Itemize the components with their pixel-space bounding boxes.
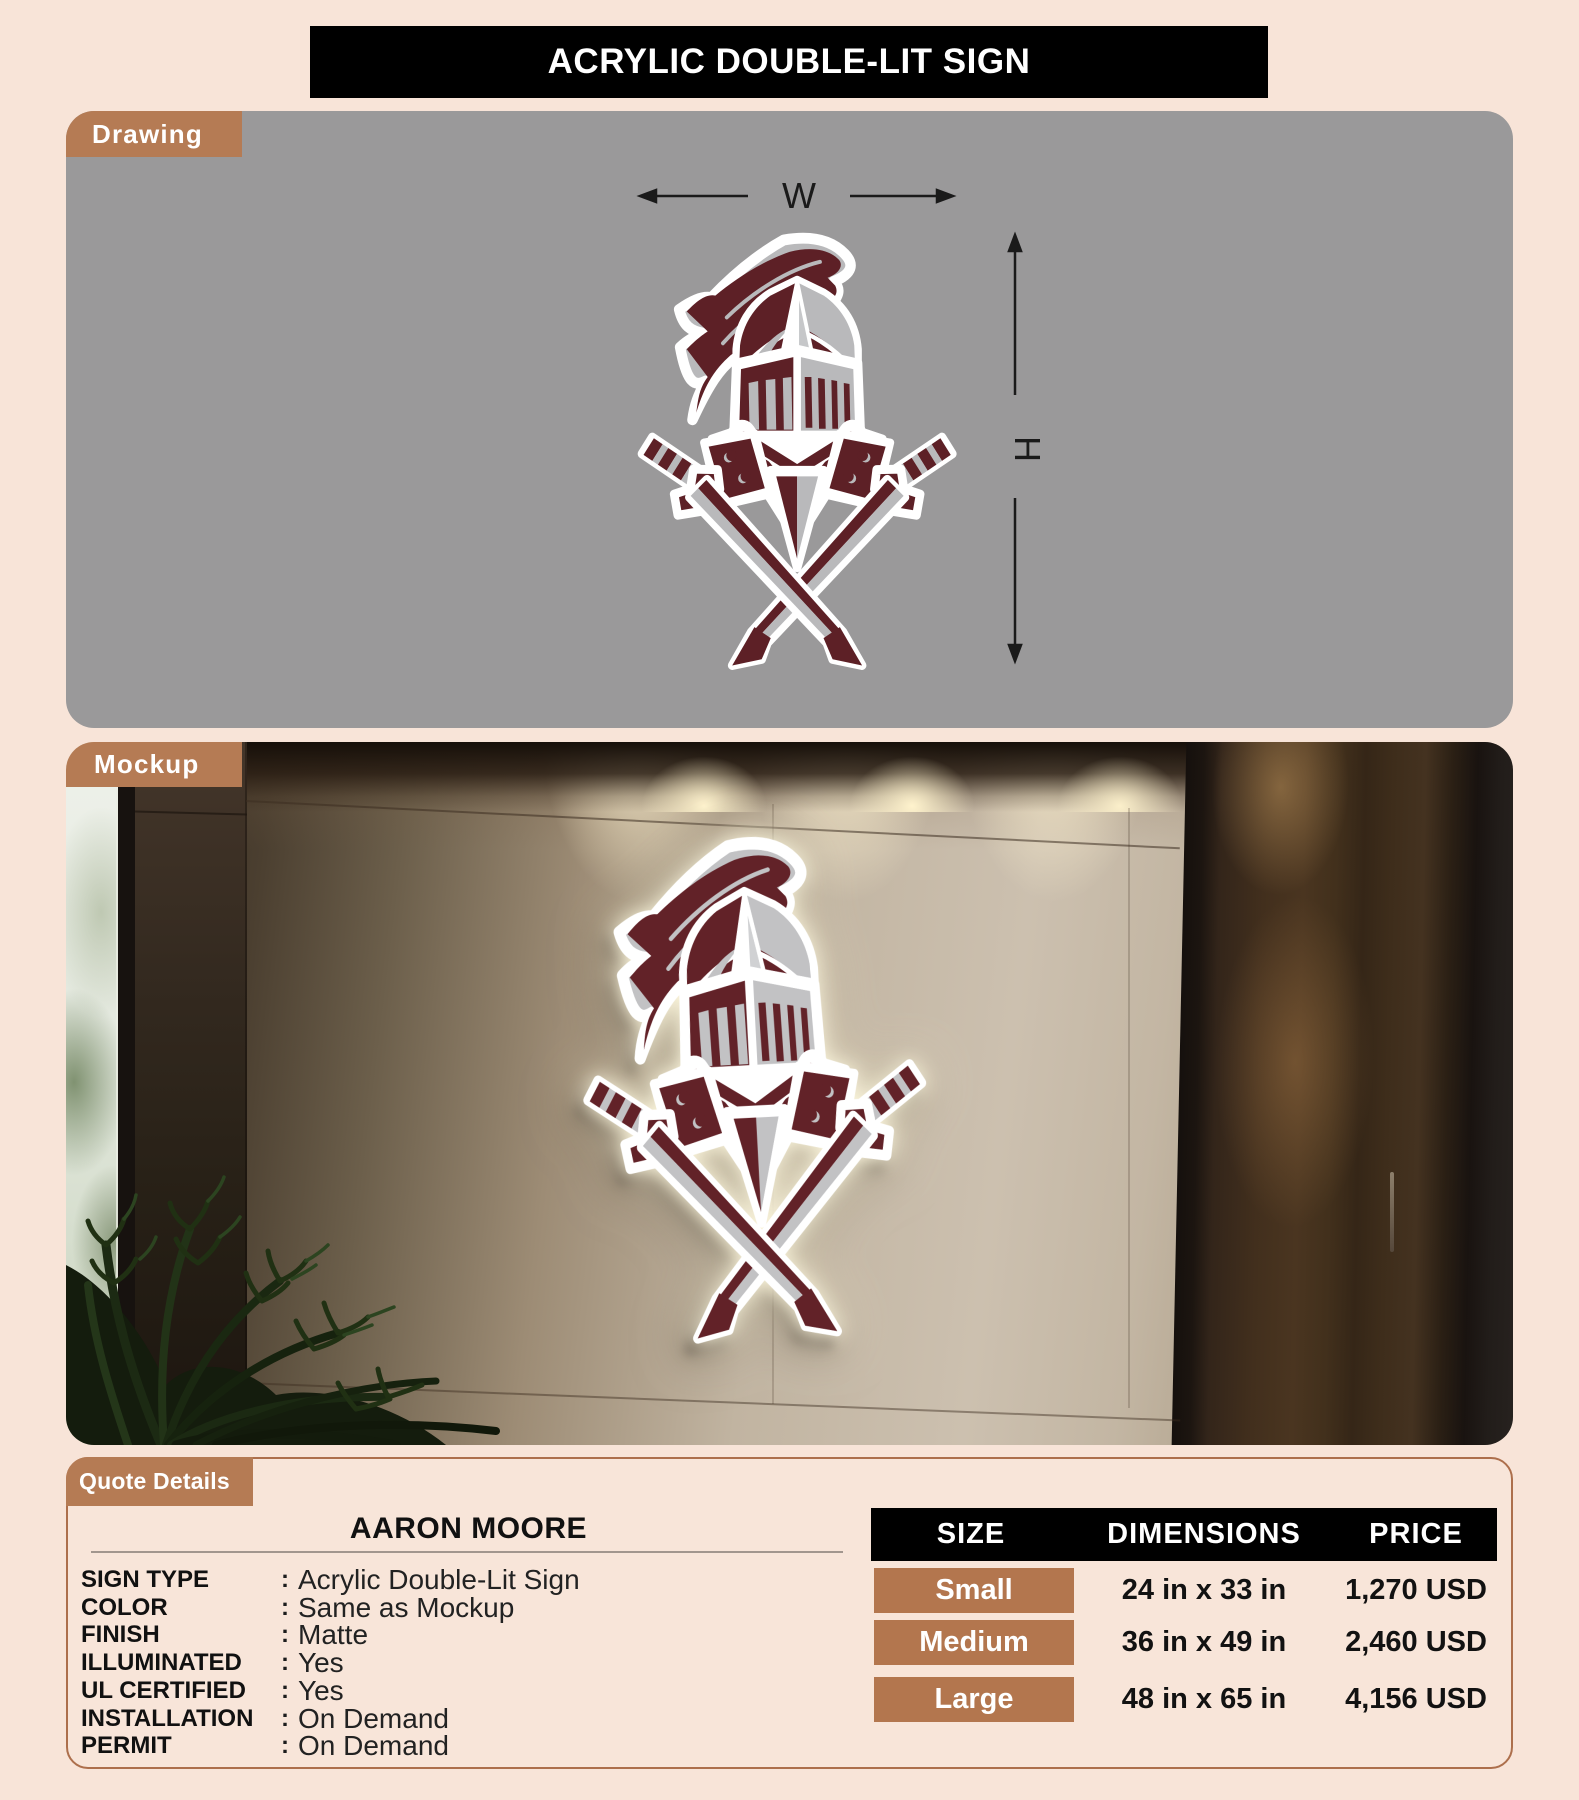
svg-text:W: W bbox=[782, 175, 816, 216]
svg-text:H: H bbox=[1007, 436, 1048, 462]
